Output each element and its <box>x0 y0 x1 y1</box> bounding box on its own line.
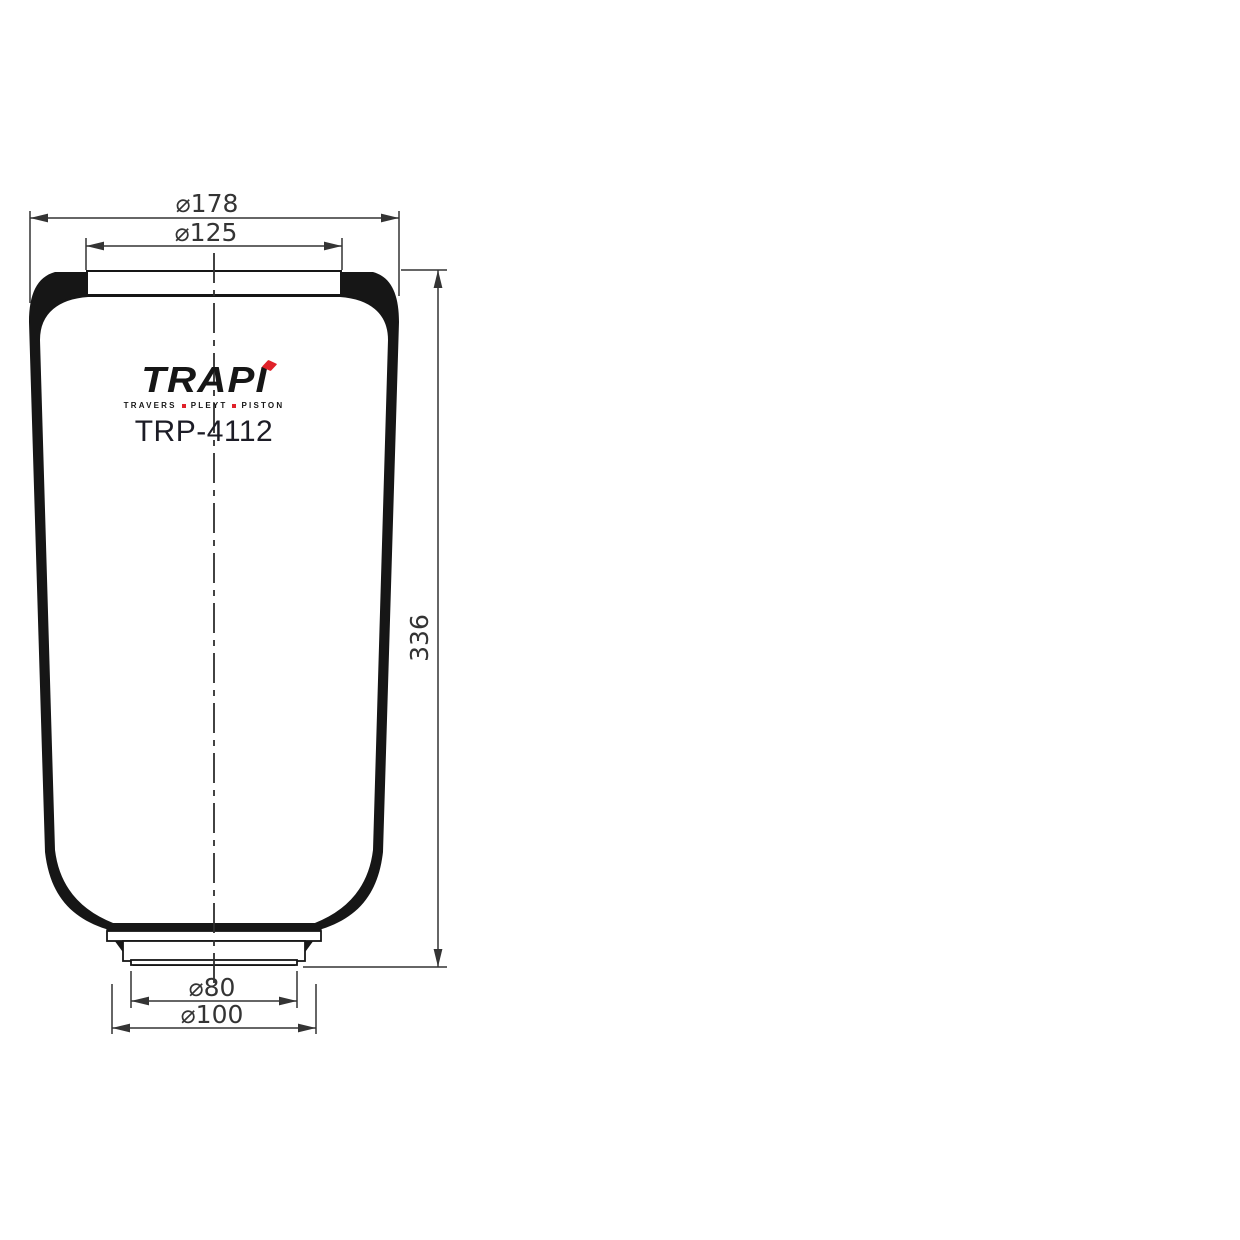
air-spring-technical-drawing: ⌀178 ⌀125 336 ⌀80 ⌀100 <box>0 0 1240 1240</box>
tagline-separator-square <box>182 404 186 408</box>
dim-125-arrow-right <box>324 242 342 251</box>
dim-178-arrow-right <box>381 214 399 223</box>
dim-336-arrow-top <box>434 270 443 288</box>
dim-80-label: ⌀80 <box>189 973 236 1002</box>
brand-name: TRAPI <box>141 359 268 400</box>
tagline-word: PLEYT <box>191 402 228 410</box>
brand-block: TRAPI TRAVERS PLEYT PISTON TRP-4112 <box>118 362 290 447</box>
dim-80-arrow-left <box>131 997 149 1006</box>
dim-336-label: 336 <box>405 614 434 662</box>
dim-125-arrow-left <box>86 242 104 251</box>
dim-178-label: ⌀178 <box>176 189 239 218</box>
tagline-separator-square <box>232 404 236 408</box>
dim-100-arrow-right <box>298 1024 316 1033</box>
dim-336-arrow-bottom <box>434 949 443 967</box>
brand-tagline: TRAVERS PLEYT PISTON <box>118 402 290 410</box>
drawing-page: ⌀178 ⌀125 336 ⌀80 ⌀100 <box>0 0 1240 1240</box>
dim-100-label: ⌀100 <box>181 1000 244 1029</box>
dim-178-arrow-left <box>30 214 48 223</box>
tagline-word: TRAVERS <box>124 402 177 410</box>
dim-125-label: ⌀125 <box>175 218 238 247</box>
part-number: TRP-4112 <box>118 417 290 447</box>
brand-logo: TRAPI <box>141 362 268 398</box>
dim-80-arrow-right <box>279 997 297 1006</box>
tagline-word: PISTON <box>241 402 284 410</box>
dim-100-arrow-left <box>112 1024 130 1033</box>
